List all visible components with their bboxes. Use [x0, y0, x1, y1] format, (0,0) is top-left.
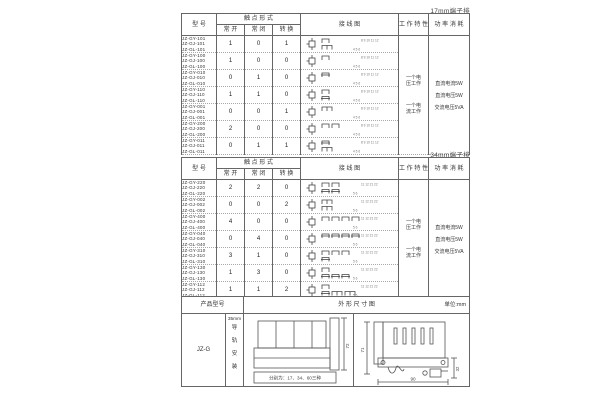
co-count: 0 — [273, 214, 301, 231]
co-count: 1 — [273, 104, 301, 121]
svg-text:11 12 21 22: 11 12 21 22 — [361, 285, 378, 289]
no-count: 2 — [217, 121, 245, 138]
nc-count: 2 — [245, 180, 273, 197]
svg-text:11 12 21 22: 11 12 21 22 — [361, 200, 378, 204]
model-cell: JZ-GY-200JZ-GJ-200JZ-GL-200 — [182, 121, 217, 138]
no-count: 0 — [217, 138, 245, 155]
wiring-diagram-cell: 8 9 10 11 124 5 6 — [301, 104, 399, 121]
nc-count: 0 — [245, 121, 273, 138]
col-header-model: 型 号 — [182, 158, 217, 180]
model-cell: JZ-GY-130JZ-GJ-130JZ-GL-130 — [182, 265, 217, 282]
header-row: 型 号 触 点 形 式 接 线 图 工 作 特 性 功 率 消 耗 — [182, 14, 470, 25]
svg-text:4 5 6: 4 5 6 — [353, 150, 360, 154]
wiring-diagram: 8 9 10 11 124 5 6 — [305, 122, 397, 136]
col-header-contact-form: 触 点 形 式 — [217, 14, 301, 25]
table-row: JZ-GY-220JZ-GJ-220JZ-GL-220 2 2 0 11 12 … — [182, 180, 470, 197]
model-cell: JZ-GY-040JZ-GJ-040JZ-GL-040 — [182, 231, 217, 248]
wiring-diagram: 8 9 10 11 124 5 6 — [305, 88, 397, 102]
svg-text:8 9 10 11 12: 8 9 10 11 12 — [361, 73, 379, 77]
co-count: 0 — [273, 248, 301, 265]
wiring-diagram-cell: 8 9 10 11 124 5 6 — [301, 121, 399, 138]
nc-count: 4 — [245, 231, 273, 248]
nc-count: 1 — [245, 248, 273, 265]
co-count: 0 — [273, 87, 301, 104]
wiring-diagram: 11 12 21 225 6 — [305, 232, 397, 246]
svg-text:8 9 10 11 12: 8 9 10 11 12 — [361, 90, 379, 94]
svg-text:8 9 10 11 12: 8 9 10 11 12 — [361, 56, 379, 60]
header-row: 型 号 触 点 形 式 接 线 图 工 作 特 性 功 率 消 耗 — [182, 158, 470, 169]
co-count: 1 — [273, 36, 301, 53]
wiring-diagram: 11 12 21 225 6 — [305, 215, 397, 229]
nc-count: 0 — [245, 104, 273, 121]
nc-count: 1 — [245, 87, 273, 104]
working-characteristics-cell: 一个电压工作 一个电流工作 — [399, 180, 429, 299]
side-clip-dim: 32 — [455, 366, 460, 371]
svg-text:11 12 21 22: 11 12 21 22 — [361, 268, 378, 272]
wiring-diagram: 11 12 21 225 6 — [305, 283, 397, 297]
nc-count: 0 — [245, 36, 273, 53]
svg-text:5 6: 5 6 — [353, 192, 358, 196]
no-count: 1 — [217, 87, 245, 104]
col-header-power: 功 率 消 耗 — [429, 158, 470, 180]
wiring-diagram: 8 9 10 11 124 5 6 — [305, 71, 397, 85]
spec-table-34mm: 型 号 触 点 形 式 接 线 图 工 作 特 性 功 率 消 耗 常 开 常 … — [181, 157, 470, 299]
dimension-table: 产品型号 外 形 尺 寸 图 单位:mm JZ-G 35mm 导 轨 安 装 — [181, 296, 470, 387]
side-width-dim: 90 — [410, 377, 416, 382]
wiring-diagram: 11 12 21 225 6 — [305, 266, 397, 280]
model-cell: JZ-GY-220JZ-GJ-220JZ-GL-220 — [182, 180, 217, 197]
front-view-cell: 72 分别为：17、34、60三种 — [244, 314, 354, 387]
no-count: 0 — [217, 197, 245, 214]
wiring-diagram-cell: 11 12 21 225 6 — [301, 265, 399, 282]
svg-text:11 12 21 22: 11 12 21 22 — [361, 183, 378, 187]
svg-text:8 9 10 11 12: 8 9 10 11 12 — [361, 124, 379, 128]
wiring-diagram: 11 12 21 225 6 — [305, 249, 397, 263]
col-header-no: 常 开 — [217, 169, 245, 180]
col-header-co: 转 换 — [273, 25, 301, 36]
nc-count: 1 — [245, 70, 273, 87]
nc-count: 0 — [245, 197, 273, 214]
document-page: 17mm端子排 型 号 触 点 形 式 接 线 图 工 作 特 性 功 率 消 … — [0, 0, 600, 400]
svg-text:5 6: 5 6 — [353, 243, 358, 247]
co-count: 0 — [273, 70, 301, 87]
wiring-diagram: 8 9 10 11 124 5 6 — [305, 37, 397, 51]
unit-label: 单位:mm — [444, 297, 466, 313]
body-row: JZ-G 35mm 导 轨 安 装 — [182, 314, 470, 387]
svg-text:11 12 21 22: 11 12 21 22 — [361, 217, 378, 221]
side-view-cell: 71 32 90 — [354, 314, 470, 387]
svg-text:8 9 10 11 12: 8 9 10 11 12 — [361, 39, 379, 43]
power-consumption-cell: 直流电流5W 直流电压5W 交流电压5VA — [429, 180, 470, 299]
power-consumption-cell: 直流电流5W 直流电压5W 交流电压5VA — [429, 36, 470, 155]
col-header-diagram: 接 线 图 — [301, 14, 399, 36]
mounting-cell: 35mm 导 轨 安 装 — [226, 314, 244, 387]
co-count: 0 — [273, 180, 301, 197]
wiring-diagram-cell: 8 9 10 11 124 5 6 — [301, 70, 399, 87]
co-count: 0 — [273, 231, 301, 248]
svg-text:5 6: 5 6 — [353, 260, 358, 264]
wiring-diagram-cell: 11 12 21 225 6 — [301, 248, 399, 265]
svg-text:11 12 21 22: 11 12 21 22 — [361, 251, 378, 255]
col-header-power: 功 率 消 耗 — [429, 14, 470, 36]
model-cell: JZ-GY-100JZ-GJ-100JZ-GL-100 — [182, 53, 217, 70]
model-cell: JZ-GY-001JZ-GJ-001JZ-GL-001 — [182, 104, 217, 121]
model-cell: JZ-GY-400JZ-GJ-400JZ-GL-400 — [182, 214, 217, 231]
no-count: 1 — [217, 265, 245, 282]
col-header-characteristics: 工 作 特 性 — [399, 158, 429, 180]
svg-text:5 6: 5 6 — [353, 209, 358, 213]
outline-title: 外 形 尺 寸 图 — [338, 302, 375, 308]
wiring-diagram-cell: 8 9 10 11 124 5 6 — [301, 53, 399, 70]
front-height-dim: 72 — [345, 343, 350, 349]
col-header-no: 常 开 — [217, 25, 245, 36]
col-header-product-model: 产品型号 — [182, 297, 244, 314]
svg-text:4 5 6: 4 5 6 — [353, 116, 360, 120]
model-cell: JZ-GY-011JZ-GJ-011JZ-GL-011 — [182, 138, 217, 155]
col-header-nc: 常 闭 — [245, 169, 273, 180]
model-cell: JZ-GY-010JZ-GJ-010JZ-GL-010 — [182, 70, 217, 87]
side-height-dim: 71 — [360, 347, 365, 353]
wiring-diagram: 8 9 10 11 124 5 6 — [305, 139, 397, 153]
product-model-value: JZ-G — [182, 314, 226, 387]
co-count: 1 — [273, 138, 301, 155]
no-count: 0 — [217, 231, 245, 248]
wiring-diagram-cell: 8 9 10 11 124 5 6 — [301, 87, 399, 104]
nc-count: 0 — [245, 214, 273, 231]
wiring-diagram: 11 12 21 225 6 — [305, 198, 397, 212]
wiring-diagram: 8 9 10 11 124 5 6 — [305, 54, 397, 68]
col-header-co: 转 换 — [273, 169, 301, 180]
svg-text:11 12 21 22: 11 12 21 22 — [361, 234, 378, 238]
svg-text:4 5 6: 4 5 6 — [353, 82, 360, 86]
no-count: 2 — [217, 180, 245, 197]
model-label: JZ-GL-101 — [182, 47, 216, 52]
col-header-characteristics: 工 作 特 性 — [399, 14, 429, 36]
svg-text:8 9 10 11 12: 8 9 10 11 12 — [361, 107, 379, 111]
svg-text:5 6: 5 6 — [353, 277, 358, 281]
col-header-nc: 常 闭 — [245, 25, 273, 36]
svg-text:5 6: 5 6 — [353, 226, 358, 230]
no-count: 1 — [217, 53, 245, 70]
side-view-drawing: 71 32 90 — [354, 314, 470, 386]
front-view-drawing: 72 分别为：17、34、60三种 — [244, 314, 354, 386]
col-header-outline: 外 形 尺 寸 图 单位:mm — [244, 297, 470, 314]
no-count: 0 — [217, 70, 245, 87]
co-count: 0 — [273, 121, 301, 138]
model-cell: JZ-GY-110JZ-GJ-110JZ-GL-110 — [182, 87, 217, 104]
co-count: 2 — [273, 197, 301, 214]
col-header-contact-form: 触 点 形 式 — [217, 158, 301, 169]
col-header-diagram: 接 线 图 — [301, 158, 399, 180]
svg-text:4 5 6: 4 5 6 — [353, 99, 360, 103]
svg-text:8 9 10 11 12: 8 9 10 11 12 — [361, 141, 379, 145]
nc-count: 1 — [245, 138, 273, 155]
no-count: 3 — [217, 248, 245, 265]
table-row: JZ-GY-101JZ-GJ-101JZ-GL-101 1 0 1 8 9 10… — [182, 36, 470, 53]
wiring-diagram: 11 12 21 225 6 — [305, 181, 397, 195]
nc-count: 0 — [245, 53, 273, 70]
wiring-diagram-cell: 8 9 10 11 124 5 6 — [301, 138, 399, 155]
no-count: 4 — [217, 214, 245, 231]
svg-text:4 5 6: 4 5 6 — [353, 133, 360, 137]
no-count: 0 — [217, 104, 245, 121]
wiring-diagram-cell: 11 12 21 225 6 — [301, 231, 399, 248]
svg-text:4 5 6: 4 5 6 — [353, 65, 360, 69]
wiring-diagram-cell: 8 9 10 11 124 5 6 — [301, 36, 399, 53]
model-cell: JZ-GY-101JZ-GJ-101JZ-GL-101 — [182, 36, 217, 53]
col-header-model: 型 号 — [182, 14, 217, 36]
wiring-diagram-cell: 11 12 21 225 6 — [301, 214, 399, 231]
header-row: 产品型号 外 形 尺 寸 图 单位:mm — [182, 297, 470, 314]
wiring-diagram: 8 9 10 11 124 5 6 — [305, 105, 397, 119]
model-cell: JZ-GY-002JZ-GJ-002JZ-GL-002 — [182, 197, 217, 214]
nc-count: 3 — [245, 265, 273, 282]
front-view-caption: 分别为：17、34、60三种 — [269, 375, 321, 382]
svg-text:4 5 6: 4 5 6 — [353, 48, 360, 52]
working-characteristics-cell: 一个电压工作 一个电流工作 — [399, 36, 429, 155]
model-cell: JZ-GY-310JZ-GJ-310JZ-GL-310 — [182, 248, 217, 265]
co-count: 0 — [273, 53, 301, 70]
wiring-diagram-cell: 11 12 21 225 6 — [301, 180, 399, 197]
co-count: 0 — [273, 265, 301, 282]
wiring-diagram-cell: 11 12 21 225 6 — [301, 197, 399, 214]
no-count: 1 — [217, 36, 245, 53]
spec-table-17mm: 型 号 触 点 形 式 接 线 图 工 作 特 性 功 率 消 耗 常 开 常 … — [181, 13, 470, 155]
